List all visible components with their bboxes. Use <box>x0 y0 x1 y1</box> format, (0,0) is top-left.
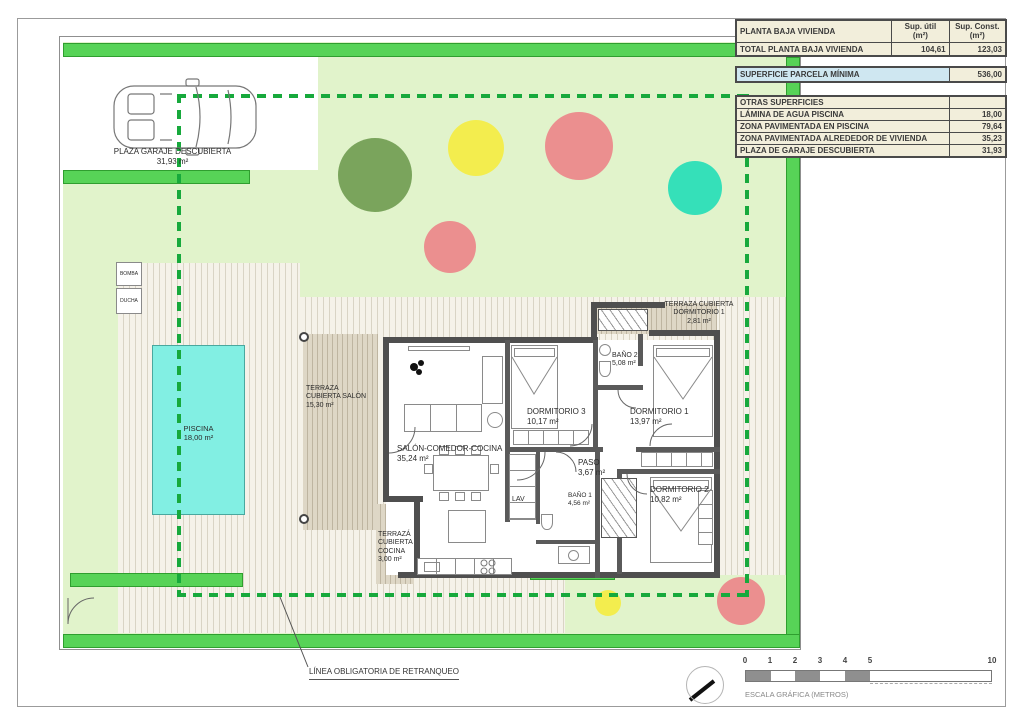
room-area: 10,82 m² <box>650 495 709 505</box>
laundry-closet <box>509 454 536 520</box>
wall <box>591 302 597 343</box>
wall <box>383 337 389 502</box>
row-value: 31,93 <box>949 144 1005 156</box>
scale-ticks: 0 1 2 3 4 5 10 <box>745 656 995 666</box>
tree-pink <box>424 221 476 273</box>
hedge-band-top <box>63 43 800 57</box>
setback-line-right <box>745 94 749 597</box>
label-line: 15,30 m² <box>306 402 366 410</box>
terrace-cocina-label: TERRAZÁ CUBIERTA COCINA 3,00 m² <box>378 531 413 565</box>
col-sup-const: Sup. Const. (m²) <box>949 20 1005 42</box>
hedge-band-bottom <box>63 634 800 648</box>
hedge-band-left-mid <box>70 573 243 587</box>
paso-label: PASO 3,67 m² <box>578 458 605 477</box>
row-label: LÁMINA DE AGUA PISCINA <box>736 108 949 120</box>
garage-area-value: 31,93 m² <box>85 157 260 167</box>
chair <box>424 464 433 474</box>
row-value: 79,64 <box>949 120 1005 132</box>
north-compass-icon <box>686 666 724 704</box>
sink-bano2 <box>599 344 611 356</box>
hall-closet <box>601 478 637 538</box>
tree-yellow <box>448 120 504 176</box>
wall <box>714 330 720 578</box>
table-row: ZONA PAVIMENTADA ALREDEDOR DE VIVIENDA 3… <box>736 132 1005 144</box>
room-name: DORMITORIO 1 <box>630 407 689 417</box>
wall <box>649 330 720 336</box>
terrace-column-top <box>299 332 309 342</box>
scale-segment <box>845 671 870 681</box>
side-table <box>487 412 503 428</box>
terrace-wardrobe <box>598 309 648 331</box>
room-name: DORMITORIO 2 <box>650 485 709 495</box>
setback-line-bottom <box>177 593 749 597</box>
wall <box>505 447 603 452</box>
wall <box>536 540 600 544</box>
tree-teal <box>668 161 722 215</box>
room-name: DORMITORIO 3 <box>527 407 586 417</box>
garage-label: PLAZA GARAJE DESCUBIERTA 31,93 m² <box>85 147 260 166</box>
terrace-column-bottom <box>299 514 309 524</box>
table-planta-baja: PLANTA BAJA VIVIENDA Sup. útil (m²) Sup.… <box>735 19 1007 57</box>
dorm3-label: DORMITORIO 3 10,17 m² <box>527 407 586 426</box>
tree-red-small <box>717 577 765 625</box>
toilet-bano2 <box>599 361 611 377</box>
sink <box>424 562 440 572</box>
row-label: PLAZA DE GARAJE DESCUBIERTA <box>736 144 949 156</box>
label-line: CUBIERTA SALÓN <box>306 393 366 401</box>
room-area: 5,08 m² <box>612 360 638 368</box>
wall <box>536 452 540 524</box>
room-name: BAÑO 2 <box>612 352 638 360</box>
toilet-bano1 <box>541 514 553 530</box>
pool-area: 18,00 m² <box>152 433 245 442</box>
label-line: COCINA <box>378 548 413 556</box>
scale-caption: ESCALA GRÁFICA (METROS) <box>745 690 848 699</box>
bano1-label: BAÑO 1 4,56 m² <box>568 492 592 508</box>
chair <box>439 492 449 501</box>
label-line: TERRAZÁ <box>378 531 413 539</box>
sink-bano1 <box>568 550 579 561</box>
total-const-value: 123,03 <box>949 42 1005 55</box>
table-title: PLANTA BAJA VIVIENDA <box>736 20 891 42</box>
tv-unit <box>408 346 470 351</box>
label-line: 2,81 m² <box>653 318 745 326</box>
pool-name: PISCINA <box>152 424 245 433</box>
parcela-label: SUPERFICIE PARCELA MÍNIMA <box>736 67 949 81</box>
kitchen-island <box>448 510 486 543</box>
dash-dot-line <box>870 683 992 684</box>
dorm2-label: DORMITORIO 2 10,82 m² <box>650 485 709 504</box>
label-line: 3,00 m² <box>378 556 413 564</box>
lav-label: LAV <box>512 496 525 504</box>
chair <box>490 464 499 474</box>
total-label: TOTAL PLANTA BAJA VIVIENDA <box>736 42 891 55</box>
room-area: 35,24 m² <box>397 454 502 464</box>
table-header-row: PLANTA BAJA VIVIENDA Sup. útil (m²) Sup.… <box>736 20 1005 42</box>
row-value: 35,23 <box>949 132 1005 144</box>
tick: 0 <box>743 656 747 665</box>
room-name: SALÓN-COMEDOR-COCINA <box>397 444 502 454</box>
tick: 2 <box>793 656 797 665</box>
shower-label: DUCHA <box>117 298 141 304</box>
pillow <box>656 348 710 357</box>
col-sup-util: Sup. útil (m²) <box>891 20 948 42</box>
room-area: 4,56 m² <box>568 500 592 508</box>
chair <box>471 492 481 501</box>
label-line: CUBIERTA <box>378 539 413 547</box>
tick: 3 <box>818 656 822 665</box>
row-label: ZONA PAVIMENTADA EN PISCINA <box>736 120 949 132</box>
tick: 1 <box>768 656 772 665</box>
setback-note: LÍNEA OBLIGATORIA DE RETRANQUEO <box>309 667 459 680</box>
tree-dark-green <box>338 138 412 212</box>
garage-name: PLAZA GARAJE DESCUBIERTA <box>85 147 260 157</box>
scale-segment <box>746 671 771 681</box>
wall <box>593 340 598 452</box>
scale-segment <box>795 671 820 681</box>
terrace-dorm1-label: TERRAZA CUBIERTA DORMITORIO 1 2,81 m² <box>653 301 745 326</box>
wall <box>383 337 598 343</box>
label-line: DORMITORIO 1 <box>653 309 745 317</box>
otras-title-empty <box>949 96 1005 108</box>
parcela-value: 536,00 <box>949 67 1005 81</box>
tick: 5 <box>868 656 872 665</box>
wardrobe-dorm1 <box>641 452 713 467</box>
bano2-label: BAÑO 2 5,08 m² <box>612 352 638 369</box>
dorm1-label: DORMITORIO 1 13,97 m² <box>630 407 689 426</box>
table-row: PLAZA DE GARAJE DESCUBIERTA 31,93 <box>736 144 1005 156</box>
table-parcela: SUPERFICIE PARCELA MÍNIMA 536,00 <box>735 66 1007 83</box>
tick: 10 <box>988 656 997 665</box>
terrace-salon <box>303 334 378 530</box>
chair <box>455 492 465 501</box>
row-value: 18,00 <box>949 108 1005 120</box>
pump-box: BOMBA <box>116 262 142 286</box>
total-util-value: 104,61 <box>891 42 948 55</box>
sofa <box>404 404 482 432</box>
table-row: LÁMINA DE AGUA PISCINA 18,00 <box>736 108 1005 120</box>
table-row: ZONA PAVIMENTADA EN PISCINA 79,64 <box>736 120 1005 132</box>
table-row: SUPERFICIE PARCELA MÍNIMA 536,00 <box>736 67 1005 81</box>
pool-label: PISCINA 18,00 m² <box>152 424 245 442</box>
table-header-row: OTRAS SUPERFICIES <box>736 96 1005 108</box>
tick: 4 <box>843 656 847 665</box>
pillow <box>514 348 555 357</box>
hedge-band-garage <box>63 170 250 184</box>
floor-plan-sheet: BOMBA DUCHA PISCINA 18,00 m² <box>0 0 1024 728</box>
setback-line-top <box>177 94 749 98</box>
label-line: TERRAZA CUBIERTA <box>653 301 745 309</box>
tree-red-large <box>545 112 613 180</box>
wardrobe-dorm3 <box>513 430 589 445</box>
room-area: 13,97 m² <box>630 417 689 427</box>
room-name: BAÑO 1 <box>568 492 592 500</box>
wall <box>638 334 643 366</box>
setback-line-left <box>177 94 181 597</box>
pump-label: BOMBA <box>117 271 141 277</box>
table-row: TOTAL PLANTA BAJA VIVIENDA 104,61 123,03 <box>736 42 1005 55</box>
shower-box: DUCHA <box>116 288 142 314</box>
otras-title: OTRAS SUPERFICIES <box>736 96 949 108</box>
room-area: 3,67 m² <box>578 468 605 478</box>
salon-label: SALÓN-COMEDOR-COCINA 35,24 m² <box>397 444 502 463</box>
wall <box>617 469 720 474</box>
wall <box>505 340 510 452</box>
table-otras-superficies: OTRAS SUPERFICIES LÁMINA DE AGUA PISCINA… <box>735 95 1007 158</box>
wall <box>593 385 643 390</box>
room-area: 10,17 m² <box>527 417 586 427</box>
terrace-salon-label: TERRAZA CUBIERTA SALÓN 15,30 m² <box>306 385 366 410</box>
media-cabinet <box>482 356 503 404</box>
room-name: PASO <box>578 458 605 468</box>
row-label: ZONA PAVIMENTADA ALREDEDOR DE VIVIENDA <box>736 132 949 144</box>
